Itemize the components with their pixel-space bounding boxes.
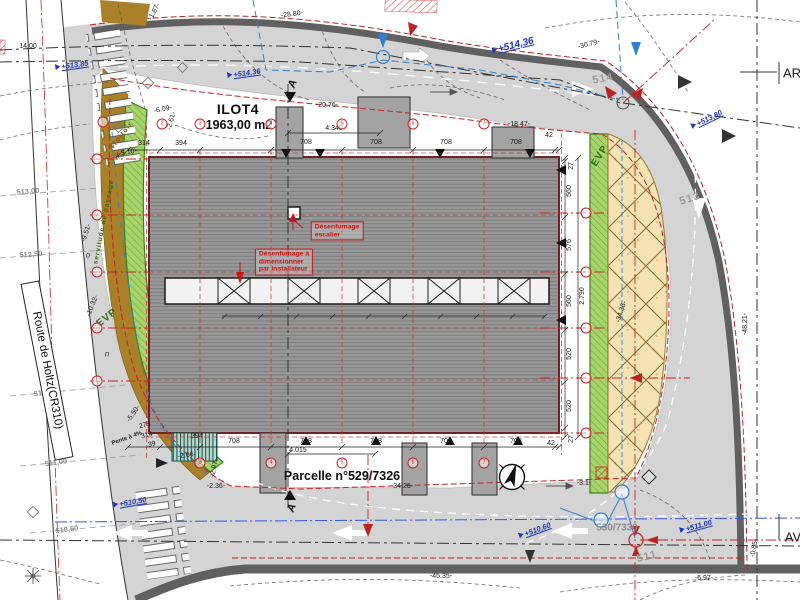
column-structure <box>472 443 497 495</box>
site-plan-canvas <box>0 0 800 600</box>
column-structure <box>260 433 286 493</box>
red-marker-square <box>596 467 607 478</box>
evp-green-strip-right <box>590 134 608 493</box>
manhole <box>594 513 608 527</box>
manhole <box>615 485 629 499</box>
site-plan: Route de Holtz(CR310) -1.87--28.80--30.7… <box>0 0 800 600</box>
column-structure <box>402 443 427 495</box>
canopy-structure <box>358 97 410 148</box>
sun-symbol <box>25 568 41 584</box>
